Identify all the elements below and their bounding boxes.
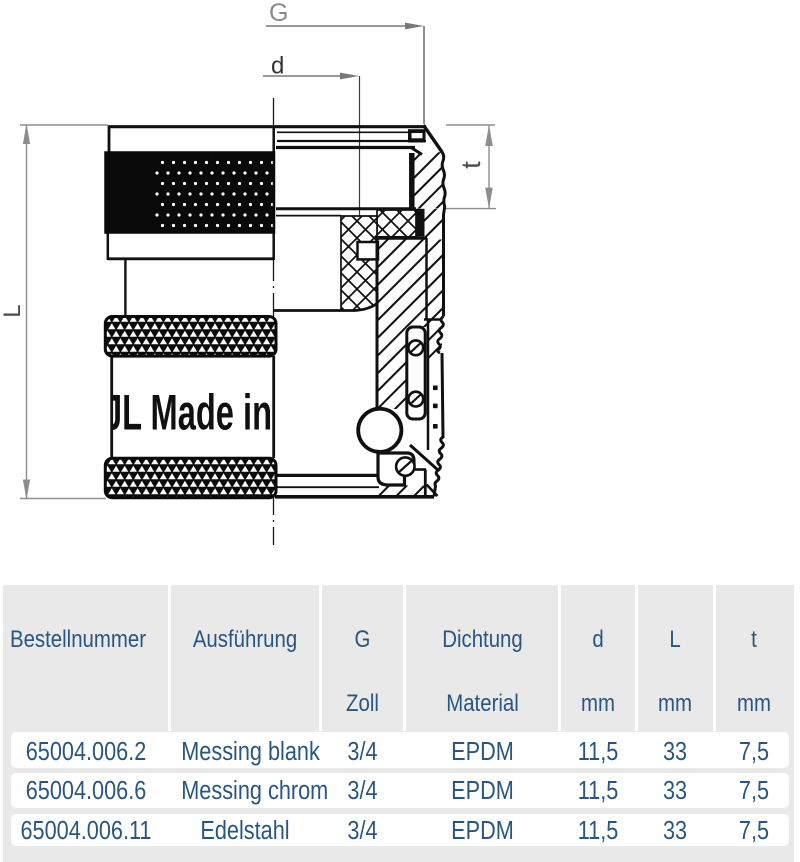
svg-text:t: t <box>456 161 486 169</box>
svg-text:JL Made in: JL Made in <box>104 385 272 441</box>
svg-text:L: L <box>0 304 26 317</box>
svg-text:G: G <box>269 0 288 27</box>
